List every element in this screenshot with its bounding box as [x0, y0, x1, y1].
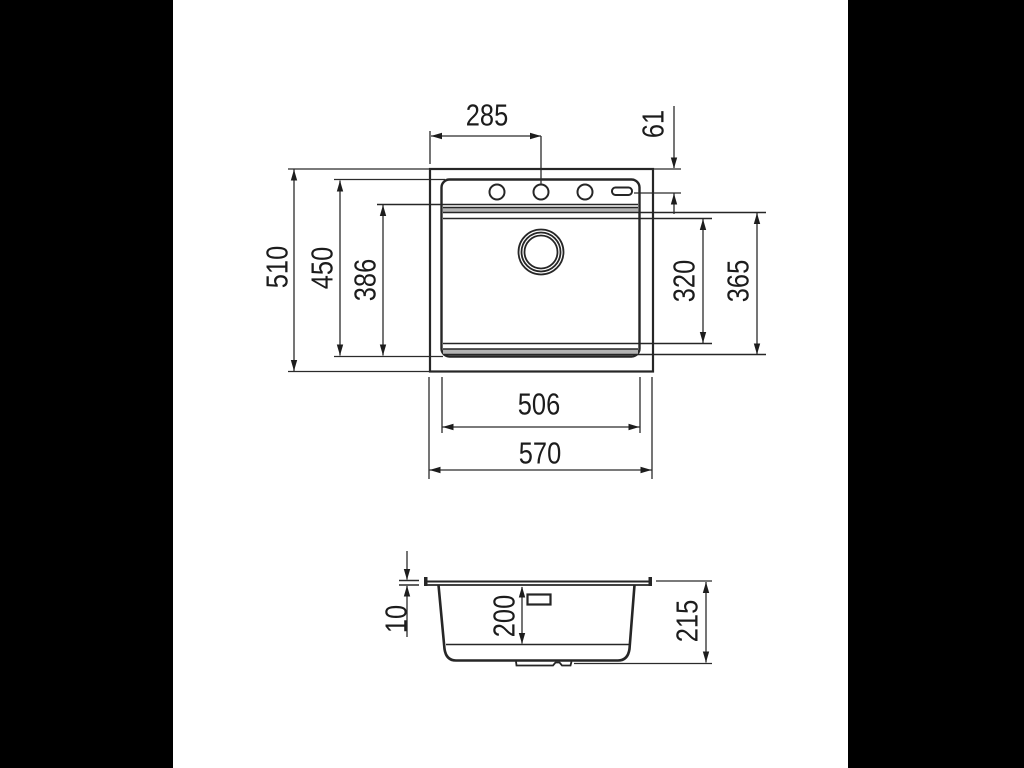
bowl-section-outline	[439, 585, 635, 661]
rim-ledge-lines	[377, 205, 766, 355]
dim-label-570: 570	[519, 438, 561, 469]
sink-dimension-drawing	[0, 0, 1024, 768]
dim-label-506: 506	[518, 389, 560, 420]
dim-label-450: 450	[307, 247, 338, 289]
overflow-slot	[612, 188, 632, 196]
faucet-holes	[490, 185, 633, 200]
dim-label-200: 200	[489, 595, 520, 637]
flange-end-right	[649, 577, 653, 586]
faucet-hole-center	[534, 185, 549, 200]
dim-label-285: 285	[466, 100, 508, 131]
flange	[424, 577, 652, 586]
side-view	[399, 551, 712, 666]
dim-label-215: 215	[672, 600, 703, 642]
dim-label-365: 365	[723, 260, 754, 302]
faucet-hole-left	[490, 185, 505, 200]
dim-label-10: 10	[381, 605, 412, 633]
dim-label-320: 320	[669, 260, 700, 302]
dim-285	[430, 131, 541, 185]
dim-label-386: 386	[350, 259, 381, 301]
faucet-hole-right	[578, 185, 593, 200]
flange-end-left	[424, 577, 428, 586]
dim-label-61: 61	[638, 110, 669, 138]
drain-circle	[519, 230, 564, 275]
overflow-window	[528, 595, 551, 605]
dim-61	[671, 106, 677, 214]
dim-label-510: 510	[262, 246, 293, 288]
drain-fitting	[516, 662, 572, 666]
screenshot-root: { "drawing": { "kind": "technical dimens…	[0, 0, 1024, 768]
